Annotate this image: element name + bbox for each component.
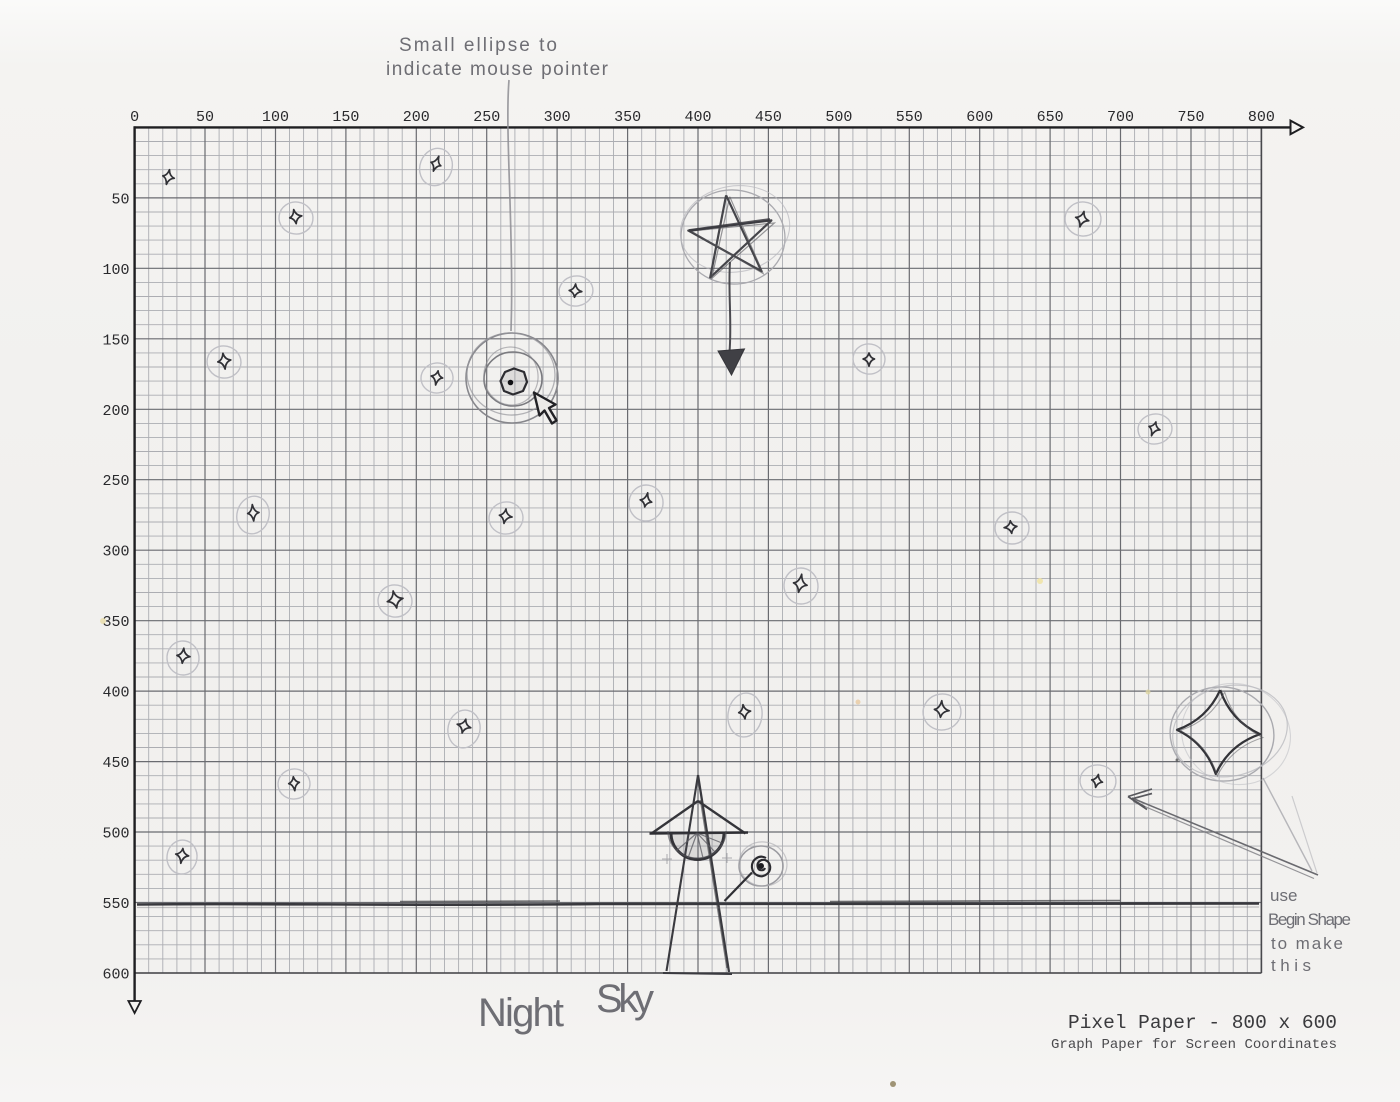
svg-text:50: 50 — [196, 109, 214, 126]
svg-text:300: 300 — [544, 109, 571, 126]
svg-text:Pixel Paper - 800 x 600: Pixel Paper - 800 x 600 — [1068, 1012, 1337, 1034]
svg-text:400: 400 — [684, 109, 711, 126]
svg-text:200: 200 — [102, 403, 129, 420]
svg-text:100: 100 — [102, 262, 129, 279]
svg-text:200: 200 — [403, 109, 430, 126]
svg-text:600: 600 — [102, 967, 129, 984]
svg-text:450: 450 — [102, 755, 129, 772]
svg-text:350: 350 — [102, 614, 129, 631]
svg-text:300: 300 — [102, 544, 129, 561]
svg-text:550: 550 — [896, 109, 923, 126]
svg-text:indicate mouse pointer: indicate mouse pointer — [386, 59, 609, 80]
svg-text:500: 500 — [102, 826, 129, 843]
svg-text:Sky: Sky — [596, 977, 654, 1021]
svg-text:650: 650 — [1037, 109, 1064, 126]
svg-text:400: 400 — [102, 685, 129, 702]
svg-text:250: 250 — [102, 473, 129, 490]
svg-text:Graph Paper for Screen Coordin: Graph Paper for Screen Coordinates — [1051, 1037, 1337, 1053]
svg-text:50: 50 — [111, 191, 129, 208]
svg-text:to make: to make — [1271, 934, 1343, 953]
svg-text:use: use — [1270, 886, 1297, 905]
svg-text:150: 150 — [102, 332, 129, 349]
svg-text:0: 0 — [130, 109, 139, 126]
svg-text:600: 600 — [966, 109, 993, 126]
svg-text:550: 550 — [102, 896, 129, 913]
svg-text:700: 700 — [1107, 109, 1134, 126]
svg-text:750: 750 — [1177, 109, 1204, 126]
svg-text:800: 800 — [1248, 109, 1275, 126]
svg-text:100: 100 — [262, 109, 289, 126]
svg-text:500: 500 — [825, 109, 852, 126]
svg-text:350: 350 — [614, 109, 641, 126]
svg-text:Small ellipse to: Small ellipse to — [399, 35, 557, 56]
svg-text:Night: Night — [478, 991, 564, 1035]
svg-text:250: 250 — [473, 109, 500, 126]
svg-text:this: this — [1271, 956, 1311, 975]
svg-text:Begin Shape: Begin Shape — [1268, 910, 1351, 929]
svg-text:150: 150 — [332, 109, 359, 126]
svg-text:450: 450 — [755, 109, 782, 126]
